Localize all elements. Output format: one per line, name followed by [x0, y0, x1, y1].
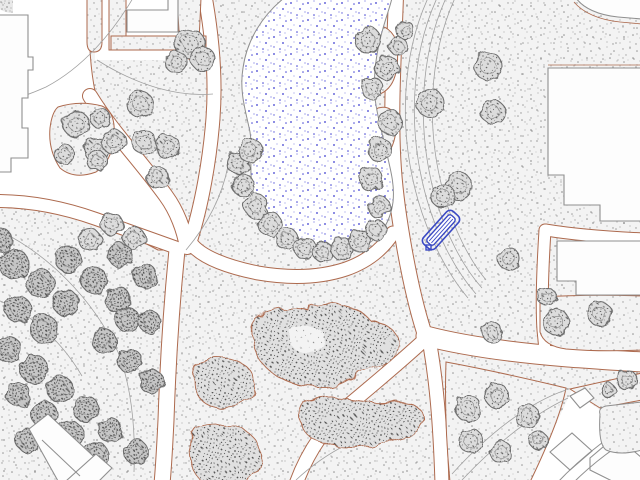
tree-canopy	[455, 395, 481, 421]
tree-canopy-texture	[359, 167, 383, 191]
tree-canopy-texture	[133, 264, 157, 288]
tree-canopy	[359, 167, 383, 191]
tree-canopy-texture	[92, 329, 116, 353]
tree-canopy-texture	[389, 37, 407, 55]
tree-canopy	[396, 21, 414, 39]
tree-canopy	[165, 51, 187, 73]
tree-canopy	[459, 429, 483, 453]
site-plan-canvas	[0, 0, 640, 480]
tree-canopy	[378, 110, 402, 134]
tree-canopy-dark	[0, 336, 21, 362]
tree-canopy-dark	[73, 396, 99, 422]
tree-canopy-texture	[146, 166, 168, 188]
tree-canopy	[132, 130, 156, 154]
tree-canopy-texture	[431, 184, 455, 208]
tree-canopy-texture	[375, 56, 399, 80]
tree-canopy	[431, 184, 455, 208]
tree-canopy	[482, 322, 502, 342]
tree-canopy-dark	[133, 264, 157, 288]
tree-canopy-texture	[108, 243, 132, 267]
tree-canopy-texture	[361, 77, 383, 99]
tree-canopy-texture	[529, 431, 547, 449]
tree-canopy-texture	[79, 229, 101, 251]
tree-canopy	[146, 166, 168, 188]
tree-canopy-texture	[6, 382, 30, 406]
tree-canopy-texture	[73, 396, 99, 422]
tree-canopy-texture	[156, 135, 180, 159]
tree-canopy-texture	[81, 267, 107, 293]
tree-canopy	[368, 196, 390, 218]
tree-canopy-dark	[108, 243, 132, 267]
tree-canopy-texture	[538, 288, 556, 306]
tree-canopy	[416, 89, 444, 117]
tree-canopy-texture	[55, 246, 81, 272]
tree-canopy-texture	[459, 429, 483, 453]
tree-canopy	[191, 47, 215, 71]
tree-canopy-dark	[5, 296, 31, 322]
tree-canopy-texture	[515, 404, 539, 428]
tree-canopy-dark	[81, 267, 107, 293]
tree-canopy	[485, 384, 509, 408]
tree-canopy-dark	[139, 311, 161, 333]
tree-canopy-dark	[92, 329, 116, 353]
tree-canopy-texture	[543, 309, 569, 335]
tree-canopy-texture	[127, 91, 153, 117]
tree-canopy	[355, 27, 381, 53]
tree-canopy	[588, 302, 612, 326]
tree-canopy-texture	[90, 108, 110, 128]
tree-canopy-dark	[118, 349, 142, 373]
tree-canopy-texture	[474, 52, 502, 80]
tree-canopy-texture	[118, 349, 142, 373]
tree-canopy-texture	[313, 242, 333, 262]
tree-canopy-texture	[26, 269, 54, 297]
tree-canopy	[490, 441, 512, 463]
tree-canopy	[294, 237, 316, 259]
tree-canopy-dark	[98, 418, 122, 442]
tree-canopy-texture	[455, 395, 481, 421]
tree-canopy-texture	[238, 138, 262, 162]
tree-canopy-texture	[617, 370, 637, 390]
tree-canopy-texture	[366, 220, 386, 240]
tree-canopy-texture	[140, 370, 164, 394]
tree-canopy-texture	[191, 47, 215, 71]
tree-canopy-texture	[482, 322, 502, 342]
tree-canopy-texture	[498, 248, 520, 270]
tree-canopy	[313, 242, 333, 262]
tree-canopy-texture	[87, 151, 107, 171]
tree-canopy-texture	[588, 302, 612, 326]
tree-canopy	[90, 108, 110, 128]
tree-canopy	[63, 111, 89, 137]
tree-canopy-texture	[102, 130, 126, 154]
building-west	[0, 15, 33, 172]
tree-canopy-texture	[53, 290, 79, 316]
tree-canopy-dark	[140, 370, 164, 394]
tree-canopy	[389, 37, 407, 55]
tree-canopy-dark	[6, 382, 30, 406]
tree-canopy-dark	[47, 376, 73, 402]
tree-canopy-texture	[101, 213, 123, 235]
tree-canopy	[515, 404, 539, 428]
grass-patch-southeast	[600, 402, 640, 453]
tree-canopy	[498, 248, 520, 270]
site-plan	[0, 0, 640, 480]
tree-canopy	[481, 100, 505, 124]
tree-canopy	[366, 220, 386, 240]
tree-canopy-dark	[116, 308, 140, 332]
tree-canopy-texture	[116, 308, 140, 332]
tree-canopy	[529, 431, 547, 449]
tree-canopy-texture	[294, 237, 316, 259]
tree-canopy-texture	[63, 111, 89, 137]
tree-canopy-texture	[47, 376, 73, 402]
tree-canopy	[54, 144, 74, 164]
tree-canopy	[543, 309, 569, 335]
tree-canopy	[102, 130, 126, 154]
shrub-mass-round	[194, 358, 255, 408]
tree-canopy-dark	[53, 290, 79, 316]
tree-canopy-dark	[55, 246, 81, 272]
tree-canopy-texture	[368, 196, 390, 218]
tree-canopy-texture	[132, 130, 156, 154]
shrub-mass-hole	[289, 325, 325, 352]
tree-canopy	[368, 138, 392, 162]
tree-canopy-texture	[355, 27, 381, 53]
tree-canopy-texture	[378, 110, 402, 134]
tree-canopy-texture	[481, 100, 505, 124]
tree-canopy-texture	[30, 315, 58, 343]
tree-canopy-dark	[124, 440, 148, 464]
tree-canopy	[238, 138, 262, 162]
tree-canopy	[375, 56, 399, 80]
tree-canopy-texture	[54, 144, 74, 164]
tree-canopy	[361, 77, 383, 99]
tree-canopy	[232, 174, 254, 196]
tree-canopy	[101, 213, 123, 235]
tree-canopy-texture	[232, 174, 254, 196]
tree-canopy-texture	[485, 384, 509, 408]
tree-canopy-texture	[20, 355, 48, 383]
tree-canopy-dark	[30, 315, 58, 343]
tree-canopy	[156, 135, 180, 159]
tree-canopy-dark	[26, 269, 54, 297]
tree-canopy	[474, 52, 502, 80]
tree-canopy-texture	[601, 383, 615, 397]
tree-canopy	[127, 91, 153, 117]
tree-canopy-texture	[124, 440, 148, 464]
tree-canopy	[538, 288, 556, 306]
tree-canopy-dark	[0, 249, 29, 279]
tree-canopy-texture	[165, 51, 187, 73]
tree-canopy	[79, 229, 101, 251]
tree-canopy-texture	[416, 89, 444, 117]
tree-canopy-texture	[98, 418, 122, 442]
tree-canopy-texture	[490, 441, 512, 463]
tree-canopy-dark	[20, 355, 48, 383]
tree-canopy	[617, 370, 637, 390]
tree-canopy-texture	[368, 138, 392, 162]
tree-canopy-texture	[139, 311, 161, 333]
tree-canopy	[87, 151, 107, 171]
tree-canopy-texture	[5, 296, 31, 322]
tree-canopy-texture	[0, 249, 29, 279]
tree-canopy-texture	[396, 21, 414, 39]
tree-canopy	[601, 383, 615, 397]
